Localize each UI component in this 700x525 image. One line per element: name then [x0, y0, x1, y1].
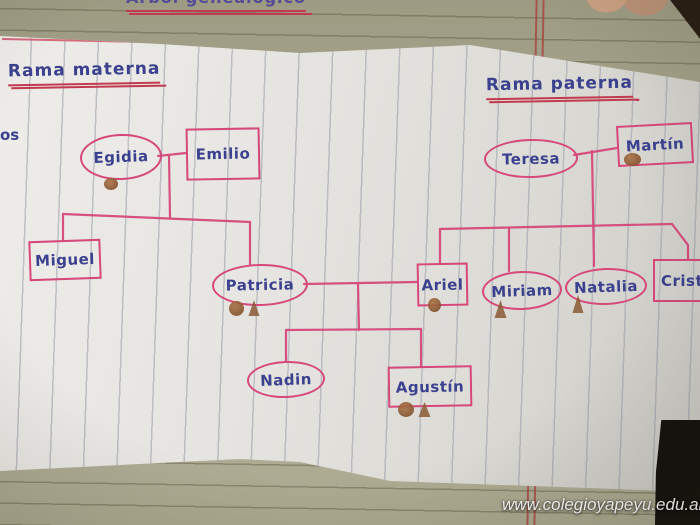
tree-node-teresa: Teresa	[484, 138, 579, 179]
stain-dot-agustin	[398, 402, 414, 417]
tree-node-teresa-label: Teresa	[502, 149, 560, 168]
tree-node-egidia: Egidia	[79, 133, 163, 182]
tree-node-emilio-label: Emilio	[196, 145, 251, 164]
tree-node-egidia-label: Egidia	[93, 147, 149, 167]
tree-node-emilio: Emilio	[186, 127, 261, 180]
notebook-title-text: Árbol genealógico	[126, 0, 306, 12]
tree-node-agustin-label: Agustín	[396, 377, 465, 396]
tree-node-nadin-label: Nadin	[260, 370, 312, 390]
tree-node-patricia-label: Patricia	[226, 275, 295, 294]
tree-node-miriam: Miriam	[481, 270, 562, 312]
tree-node-natalia-label: Natalia	[574, 276, 638, 296]
tree-node-agustin: Agustín	[388, 365, 473, 407]
fingers-at-top-edge	[586, 0, 668, 26]
stain-dot-patricia	[229, 301, 244, 316]
tree-node-miguel: Miguel	[28, 239, 101, 281]
tree-node-martin-label: Martín	[625, 134, 684, 155]
stain-dot-martin	[624, 153, 641, 166]
notebook-title-partial: Árbol genealógico	[126, 0, 306, 12]
maternal-branch-label: Rama materna	[8, 59, 161, 87]
tree-node-ariel-label: Ariel	[421, 275, 463, 294]
tree-node-miguel-label: Miguel	[35, 250, 95, 270]
stain-dot-egidia	[104, 178, 118, 190]
paternal-branch-heading: Rama paterna	[486, 73, 633, 101]
tree-node-nadin: Nadin	[246, 360, 325, 400]
website-watermark: www.colegioyapeyu.edu.ar	[502, 495, 700, 515]
stain-dot-ariel	[428, 298, 441, 312]
maternal-branch-heading: Rama materna	[8, 59, 161, 87]
tree-node-patricia: Patricia	[212, 263, 309, 307]
tree-node-cristian-label: Cristian	[661, 272, 700, 290]
tree-node-miriam-label: Miriam	[491, 280, 553, 300]
left-edge-text-fragment: os	[0, 126, 19, 144]
paternal-branch-label: Rama paterna	[486, 73, 633, 101]
tree-node-cristian: Cristian	[653, 259, 700, 302]
tree-node-ariel: Ariel	[417, 263, 469, 307]
photo-canvas: { "title_partial": "Árbol genealógico", …	[0, 0, 700, 525]
family-tree-sheet: Rama materna Rama paterna os Egidia Emil…	[0, 0, 700, 525]
